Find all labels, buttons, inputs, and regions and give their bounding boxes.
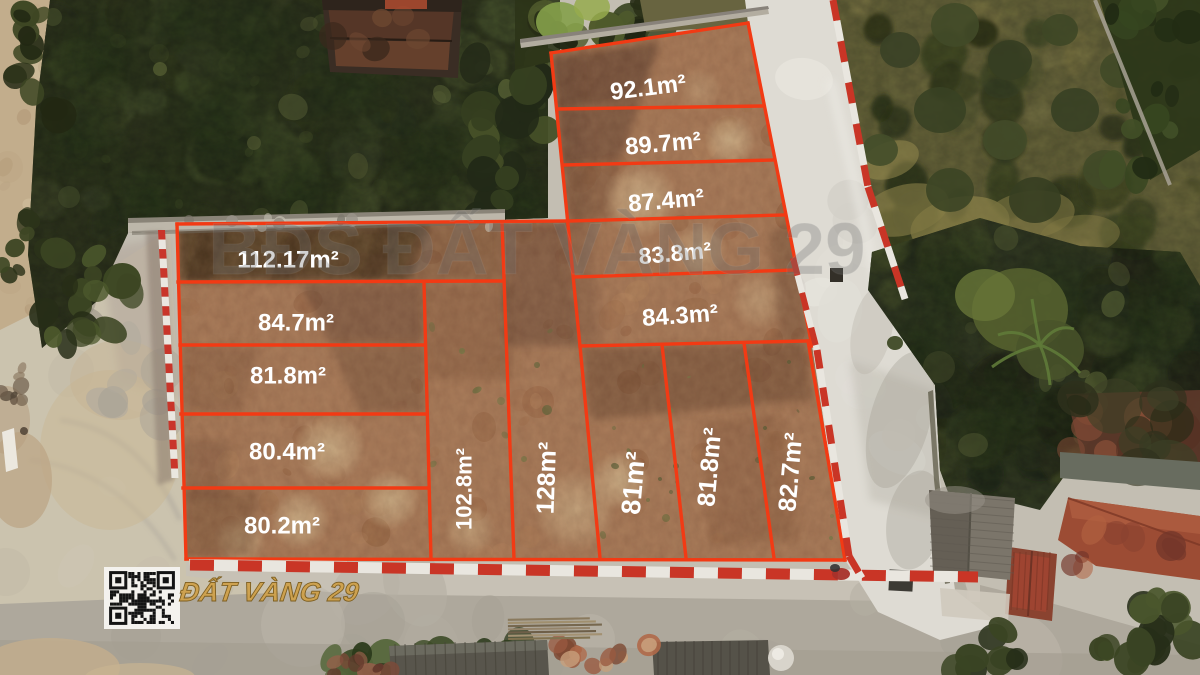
svg-text:102.8m²: 102.8m² <box>452 448 477 530</box>
svg-text:80.4m²: 80.4m² <box>249 438 325 465</box>
svg-text:81m²: 81m² <box>616 450 651 515</box>
svg-text:ĐẤT VÀNG 29: ĐẤT VÀNG 29 <box>178 576 361 607</box>
svg-text:80.2m²: 80.2m² <box>244 512 320 539</box>
svg-text:84.7m²: 84.7m² <box>258 309 334 336</box>
svg-text:84.3m²: 84.3m² <box>641 300 719 332</box>
svg-text:128m²: 128m² <box>531 441 562 514</box>
svg-text:BĐS ĐẤT VÀNG 29: BĐS ĐẤT VÀNG 29 <box>208 209 865 290</box>
svg-text:81.8m²: 81.8m² <box>250 362 326 389</box>
